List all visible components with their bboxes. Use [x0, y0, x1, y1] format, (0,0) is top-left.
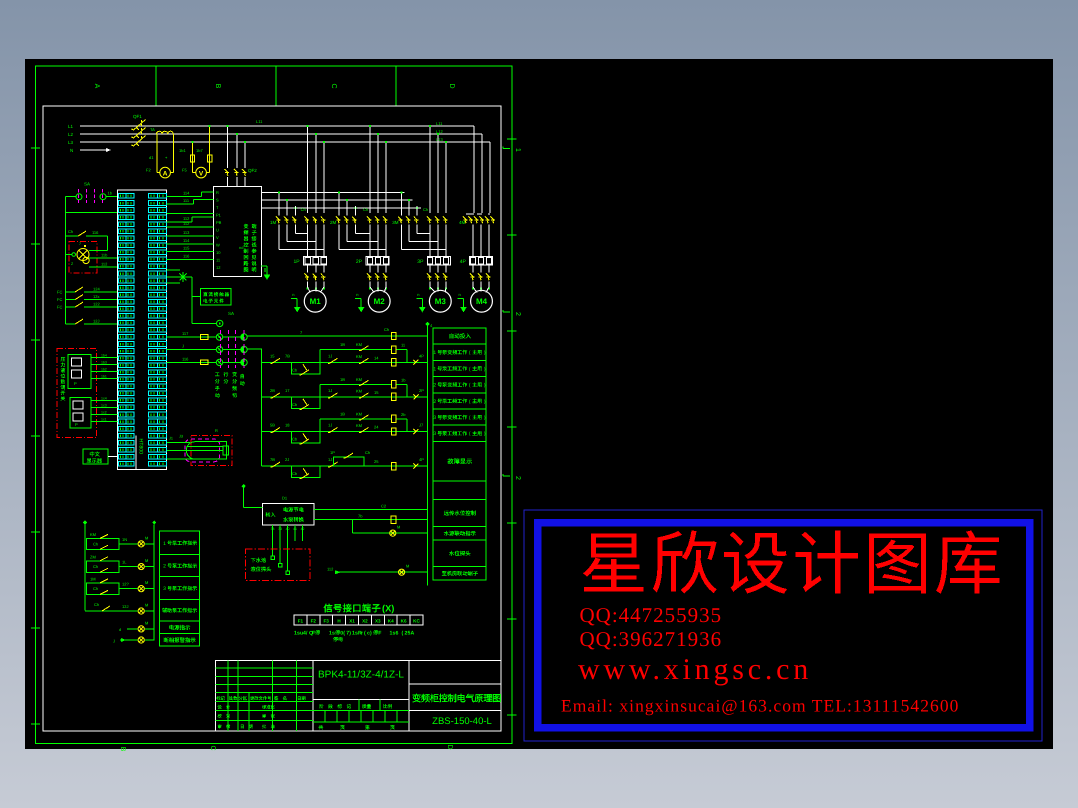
svg-text:C2: C2 — [381, 504, 387, 509]
svg-text:V: V — [199, 170, 204, 177]
svg-text:J3: J3 — [179, 435, 183, 439]
svg-text:10: 10 — [216, 250, 221, 255]
svg-text:1M: 1M — [270, 220, 277, 225]
svg-text:2P: 2P — [419, 388, 424, 393]
svg-text:1c2: 1c2 — [101, 411, 107, 415]
svg-text:1P: 1P — [330, 450, 335, 455]
svg-text:6: 6 — [396, 631, 399, 637]
svg-text:F5: F5 — [182, 168, 187, 173]
svg-text:A: A — [163, 170, 168, 177]
svg-text:(: ( — [402, 631, 404, 637]
svg-text:TA: TA — [150, 127, 155, 132]
svg-text:P: P — [74, 381, 77, 386]
svg-text:1: 1 — [163, 541, 166, 547]
svg-text:M2: M2 — [374, 297, 386, 306]
svg-text:42: 42 — [301, 527, 305, 531]
svg-text:B: B — [119, 747, 126, 752]
svg-text:P: P — [75, 422, 78, 427]
svg-text:113: 113 — [183, 230, 190, 235]
svg-text:(X): (X) — [382, 604, 394, 614]
svg-text:KM: KM — [356, 377, 362, 382]
svg-text:Ch: Ch — [365, 450, 370, 455]
svg-text:D: D — [446, 744, 453, 749]
svg-text:BPK4-11/3Z-4/1Z-L: BPK4-11/3Z-4/1Z-L — [318, 670, 404, 681]
svg-text:D1: D1 — [282, 496, 288, 501]
svg-text:ZM: ZM — [90, 554, 96, 559]
svg-text:1b3: 1b3 — [101, 361, 107, 365]
svg-text:FC: FC — [57, 305, 62, 310]
svg-text:Ch: Ch — [68, 229, 73, 234]
svg-text:Ch: Ch — [93, 586, 98, 591]
svg-text:L2: L2 — [68, 132, 74, 137]
svg-text:d1: d1 — [149, 155, 154, 160]
svg-text:Ch: Ch — [93, 564, 98, 569]
svg-text:M: M — [145, 558, 148, 563]
svg-text:X3: X3 — [375, 619, 381, 624]
svg-text:M: M — [145, 621, 148, 626]
svg-text:1b7: 1b7 — [196, 148, 203, 153]
svg-text:3M: 3M — [392, 220, 399, 225]
svg-text:114: 114 — [183, 190, 190, 195]
svg-text:QQ:396271936: QQ:396271936 — [580, 627, 723, 651]
svg-text:2P: 2P — [356, 259, 363, 265]
svg-text:24: 24 — [374, 425, 379, 430]
svg-text:nd: nd — [239, 245, 243, 250]
svg-text:F: F — [312, 631, 315, 637]
svg-text:M4: M4 — [476, 297, 488, 306]
svg-text:3P: 3P — [417, 259, 424, 265]
svg-text:3: 3 — [433, 431, 436, 437]
svg-text:L3: L3 — [68, 140, 74, 145]
svg-text:F2: F2 — [146, 168, 151, 173]
svg-text:Ch: Ch — [384, 327, 389, 332]
svg-text:M: M — [397, 525, 400, 530]
svg-text:1M: 1M — [90, 576, 96, 581]
svg-text:M3: M3 — [435, 297, 447, 306]
svg-text:1b4: 1b4 — [101, 354, 107, 358]
svg-text:FC: FC — [57, 297, 62, 302]
svg-text:2: 2 — [433, 383, 436, 389]
svg-text:n: n — [356, 292, 358, 297]
svg-text:L13: L13 — [436, 137, 443, 142]
svg-text:PB: PB — [216, 220, 222, 225]
svg-text:1P: 1P — [294, 259, 301, 265]
svg-text:J: J — [113, 639, 115, 644]
svg-text:s: s — [332, 631, 335, 637]
svg-text:2: 2 — [514, 476, 521, 480]
svg-text:n: n — [459, 292, 461, 297]
svg-text:124: 124 — [93, 287, 100, 292]
svg-text:2b: 2b — [401, 412, 406, 417]
svg-text:N: N — [70, 148, 73, 153]
svg-text:www.xingsc.cn: www.xingsc.cn — [578, 653, 812, 686]
svg-text:7: 7 — [79, 242, 81, 246]
svg-text:12?: 12? — [122, 582, 129, 587]
svg-text:J1: J1 — [169, 437, 173, 441]
svg-text:Ch: Ch — [301, 207, 306, 212]
svg-text:5B: 5B — [270, 423, 275, 428]
svg-text:12x: 12x — [93, 294, 99, 299]
svg-text:F: F — [378, 631, 381, 637]
svg-text:12J: 12J — [122, 604, 128, 609]
svg-text:QF1: QF1 — [133, 114, 142, 119]
svg-text:40: 40 — [286, 527, 290, 531]
svg-text:J: J — [182, 344, 184, 349]
svg-text:KM: KM — [90, 532, 96, 537]
svg-text:R: R — [215, 428, 218, 433]
svg-text:L1: L1 — [68, 124, 74, 129]
svg-text:1J: 1J — [328, 457, 332, 462]
svg-text:112: 112 — [101, 262, 108, 267]
svg-text:122: 122 — [93, 302, 100, 307]
svg-text:n: n — [417, 292, 419, 297]
svg-text:F2: F2 — [311, 619, 317, 624]
svg-text:V: V — [216, 235, 219, 240]
svg-text:4P: 4P — [419, 457, 424, 462]
svg-text:SA: SA — [84, 182, 90, 187]
svg-text:KM: KM — [356, 354, 362, 359]
svg-text:111: 111 — [183, 198, 190, 203]
svg-text:n: n — [292, 292, 294, 297]
svg-text:Ch: Ch — [423, 207, 428, 212]
svg-text:3: 3 — [433, 415, 436, 421]
svg-text:KC: KC — [413, 619, 420, 624]
svg-text:KM: KM — [356, 411, 362, 416]
svg-text:QQ:447255935: QQ:447255935 — [580, 603, 723, 627]
svg-text:Cb: Cb — [292, 402, 298, 407]
svg-text:115: 115 — [183, 246, 190, 251]
svg-text:114: 114 — [183, 238, 190, 243]
svg-text:25: 25 — [374, 459, 379, 464]
svg-text:P1: P1 — [216, 213, 222, 218]
svg-text:7b: 7b — [358, 514, 363, 519]
svg-text:1b1: 1b1 — [179, 148, 186, 153]
svg-text:2J: 2J — [285, 457, 289, 462]
svg-text:A: A — [411, 631, 415, 637]
svg-text:A: A — [93, 84, 100, 89]
svg-text:18: 18 — [285, 423, 290, 428]
svg-text:FC: FC — [57, 290, 62, 295]
svg-text:7B: 7B — [270, 457, 275, 462]
svg-text:R: R — [216, 190, 219, 195]
svg-text:SA: SA — [228, 311, 234, 316]
svg-text:1b1: 1b1 — [101, 375, 107, 379]
svg-text:12J: 12J — [93, 319, 99, 324]
svg-text:1L: 1L — [122, 560, 127, 565]
svg-text:): ) — [370, 631, 372, 637]
svg-text:D: D — [448, 83, 455, 88]
svg-text:112: 112 — [327, 567, 334, 572]
svg-text:Ch: Ch — [93, 541, 98, 546]
svg-text:1B: 1B — [340, 377, 345, 382]
svg-text:X2: X2 — [362, 619, 368, 624]
svg-text:1J: 1J — [328, 388, 332, 393]
svg-text:M1: M1 — [310, 297, 322, 306]
svg-text:): ) — [349, 631, 351, 637]
svg-text:U: U — [216, 228, 219, 233]
svg-text:QF2: QF2 — [248, 168, 257, 173]
svg-text:KM: KM — [356, 342, 362, 347]
svg-text:W: W — [216, 243, 220, 248]
svg-text:116: 116 — [182, 356, 189, 361]
svg-text:12: 12 — [216, 265, 221, 270]
svg-text:1: 1 — [433, 350, 436, 356]
svg-text:1J: 1J — [328, 353, 332, 358]
svg-text:1c3: 1c3 — [101, 404, 107, 408]
svg-text:M: M — [145, 603, 148, 608]
svg-text:L11: L11 — [436, 121, 443, 126]
svg-text:1c1: 1c1 — [101, 418, 107, 422]
svg-text:3: 3 — [163, 586, 166, 592]
svg-text:1b: 1b — [108, 191, 113, 196]
svg-text:Cb: Cb — [292, 367, 298, 372]
svg-text:Cb: Cb — [292, 471, 298, 476]
svg-text:15: 15 — [270, 353, 275, 358]
svg-text:39: 39 — [278, 527, 282, 531]
svg-text:38: 38 — [271, 527, 275, 531]
svg-text:7B: 7B — [285, 353, 290, 358]
svg-text:M: M — [145, 580, 148, 585]
svg-text:M: M — [406, 564, 409, 569]
svg-text:Ch: Ch — [363, 207, 368, 212]
svg-text:HT800: HT800 — [138, 439, 144, 455]
svg-text:Ch: Ch — [94, 602, 99, 607]
svg-text:1b2: 1b2 — [101, 368, 107, 372]
svg-text:1N: 1N — [122, 537, 127, 542]
svg-text:M: M — [145, 535, 148, 540]
svg-text:116: 116 — [183, 254, 190, 259]
svg-text:KM: KM — [356, 423, 362, 428]
svg-text:d: d — [119, 627, 121, 632]
svg-text:116: 116 — [92, 230, 99, 235]
svg-text:2: 2 — [163, 564, 166, 570]
svg-text:41: 41 — [293, 527, 297, 531]
svg-text:2B: 2B — [270, 388, 275, 393]
svg-text:L11: L11 — [256, 119, 263, 124]
svg-text:117: 117 — [182, 331, 189, 336]
svg-text:2: 2 — [433, 399, 436, 405]
svg-text:1J: 1J — [328, 423, 332, 428]
svg-text:(: ( — [364, 631, 366, 637]
svg-text:Cb: Cb — [292, 437, 298, 442]
svg-text:C: C — [209, 745, 216, 750]
svg-text:4M: 4M — [459, 220, 466, 225]
svg-text:K6: K6 — [401, 619, 407, 624]
svg-text:112: 112 — [183, 221, 190, 226]
svg-text:11b: 11b — [101, 253, 108, 258]
svg-text:2: 2 — [514, 312, 521, 316]
svg-text:15: 15 — [374, 390, 379, 395]
svg-text:C: C — [330, 83, 337, 88]
svg-text:X1: X1 — [349, 619, 355, 624]
svg-text:K4: K4 — [388, 619, 394, 624]
svg-text:17: 17 — [285, 388, 290, 393]
svg-text:1B: 1B — [340, 411, 345, 416]
svg-text:F1: F1 — [298, 619, 304, 624]
svg-text:1: 1 — [433, 366, 436, 372]
svg-text:ZBS-150-40-L: ZBS-150-40-L — [432, 716, 492, 727]
svg-text:S: S — [216, 198, 219, 203]
svg-text:1B: 1B — [340, 342, 345, 347]
svg-text:Email: xingxinsucai@163.com: Email: xingxinsucai@163.com TEL:13111542… — [561, 696, 959, 716]
svg-text:KM: KM — [356, 388, 362, 393]
svg-text:2M: 2M — [330, 220, 337, 225]
svg-text:4P: 4P — [419, 353, 424, 358]
svg-text:r: r — [361, 631, 363, 637]
svg-text:1c4: 1c4 — [101, 397, 107, 401]
svg-text:4P: 4P — [460, 259, 467, 265]
svg-text:1: 1 — [514, 148, 521, 152]
svg-text:14: 14 — [374, 355, 379, 360]
svg-text:B: B — [214, 84, 221, 89]
svg-text:F3: F3 — [324, 619, 330, 624]
svg-text:(: ( — [343, 631, 345, 637]
svg-text:1b: 1b — [401, 377, 406, 382]
